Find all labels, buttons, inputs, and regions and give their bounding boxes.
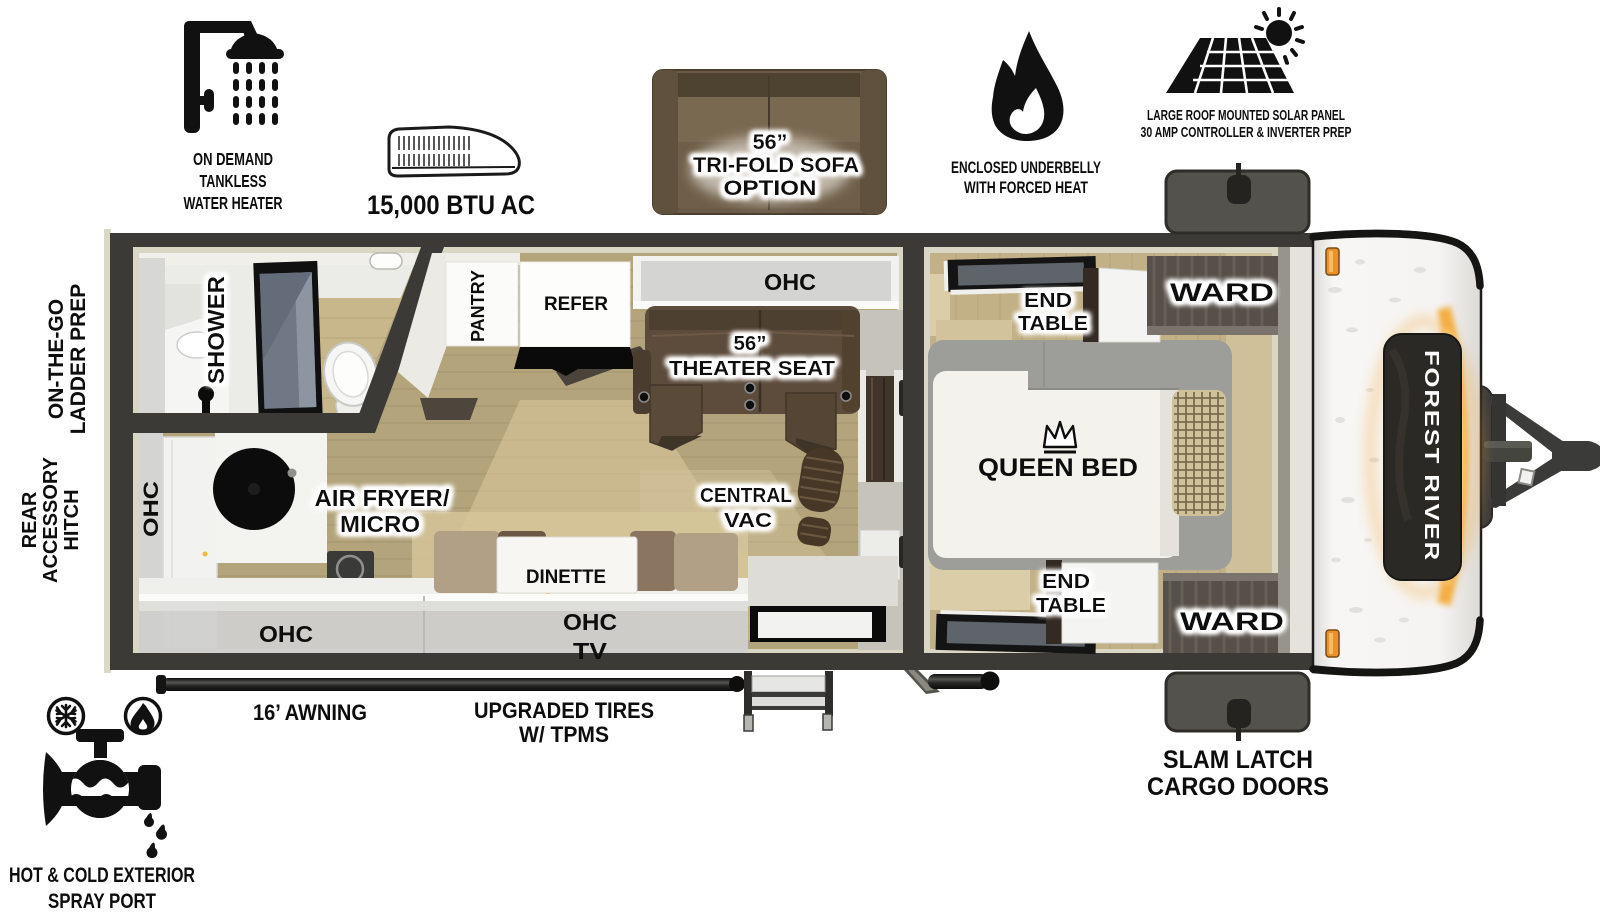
svg-text:END: END [1024, 289, 1072, 312]
svg-text:56”: 56” [753, 130, 788, 154]
svg-text:REAR: REAR [19, 491, 41, 548]
svg-text:CARGO DOORS: CARGO DOORS [1147, 773, 1329, 801]
svg-text:HITCH: HITCH [61, 489, 83, 550]
svg-text:16’ AWNING: 16’ AWNING [253, 700, 367, 725]
svg-text:TV: TV [573, 638, 608, 664]
svg-text:OHC: OHC [140, 481, 163, 537]
svg-text:HOT & COLD EXTERIOR: HOT & COLD EXTERIOR [9, 863, 195, 887]
svg-text:30 AMP CONTROLLER & INVERTER P: 30 AMP CONTROLLER & INVERTER PREP [1141, 125, 1352, 141]
svg-text:FOREST RIVER: FOREST RIVER [1420, 350, 1443, 562]
svg-text:ACCESSORY: ACCESSORY [40, 456, 62, 583]
svg-text:W/ TPMS: W/ TPMS [519, 722, 609, 747]
svg-text:END: END [1042, 570, 1090, 593]
svg-text:ON-THE-GO: ON-THE-GO [45, 299, 68, 419]
svg-text:AIR FRYER/: AIR FRYER/ [315, 485, 450, 511]
svg-text:56”: 56” [733, 332, 766, 355]
svg-text:CENTRAL: CENTRAL [700, 485, 792, 507]
svg-text:OHC: OHC [764, 269, 816, 295]
svg-text:MICRO: MICRO [340, 511, 420, 537]
svg-text:PANTRY: PANTRY [468, 270, 488, 342]
svg-text:OHC: OHC [563, 609, 617, 635]
svg-text:REFER: REFER [544, 293, 608, 315]
svg-text:WITH FORCED HEAT: WITH FORCED HEAT [964, 179, 1088, 197]
svg-text:ENCLOSED UNDERBELLY: ENCLOSED UNDERBELLY [951, 159, 1101, 177]
svg-text:DINETTE: DINETTE [526, 566, 606, 588]
svg-text:OPTION: OPTION [724, 176, 817, 200]
svg-text:ON DEMAND: ON DEMAND [193, 149, 273, 169]
svg-text:TANKLESS: TANKLESS [200, 171, 267, 191]
svg-text:WARD: WARD [1180, 608, 1284, 636]
svg-text:VAC: VAC [724, 510, 772, 532]
svg-text:TABLE: TABLE [1036, 594, 1106, 617]
svg-text:OHC: OHC [259, 621, 313, 647]
svg-text:WARD: WARD [1170, 279, 1274, 307]
svg-text:LADDER PREP: LADDER PREP [67, 284, 90, 435]
svg-text:15,000 BTU AC: 15,000 BTU AC [367, 190, 535, 220]
svg-text:LARGE ROOF MOUNTED SOLAR PANEL: LARGE ROOF MOUNTED SOLAR PANEL [1147, 108, 1345, 124]
svg-text:QUEEN BED: QUEEN BED [978, 454, 1138, 482]
svg-text:THEATER SEAT: THEATER SEAT [669, 357, 836, 380]
svg-text:UPGRADED TIRES: UPGRADED TIRES [474, 698, 654, 723]
svg-text:TRI-FOLD SOFA: TRI-FOLD SOFA [693, 153, 859, 177]
svg-text:SPRAY PORT: SPRAY PORT [48, 889, 156, 913]
svg-text:WATER HEATER: WATER HEATER [184, 193, 283, 213]
svg-text:SLAM LATCH: SLAM LATCH [1163, 746, 1313, 774]
svg-text:TABLE: TABLE [1018, 312, 1088, 335]
svg-text:SHOWER: SHOWER [203, 276, 229, 384]
